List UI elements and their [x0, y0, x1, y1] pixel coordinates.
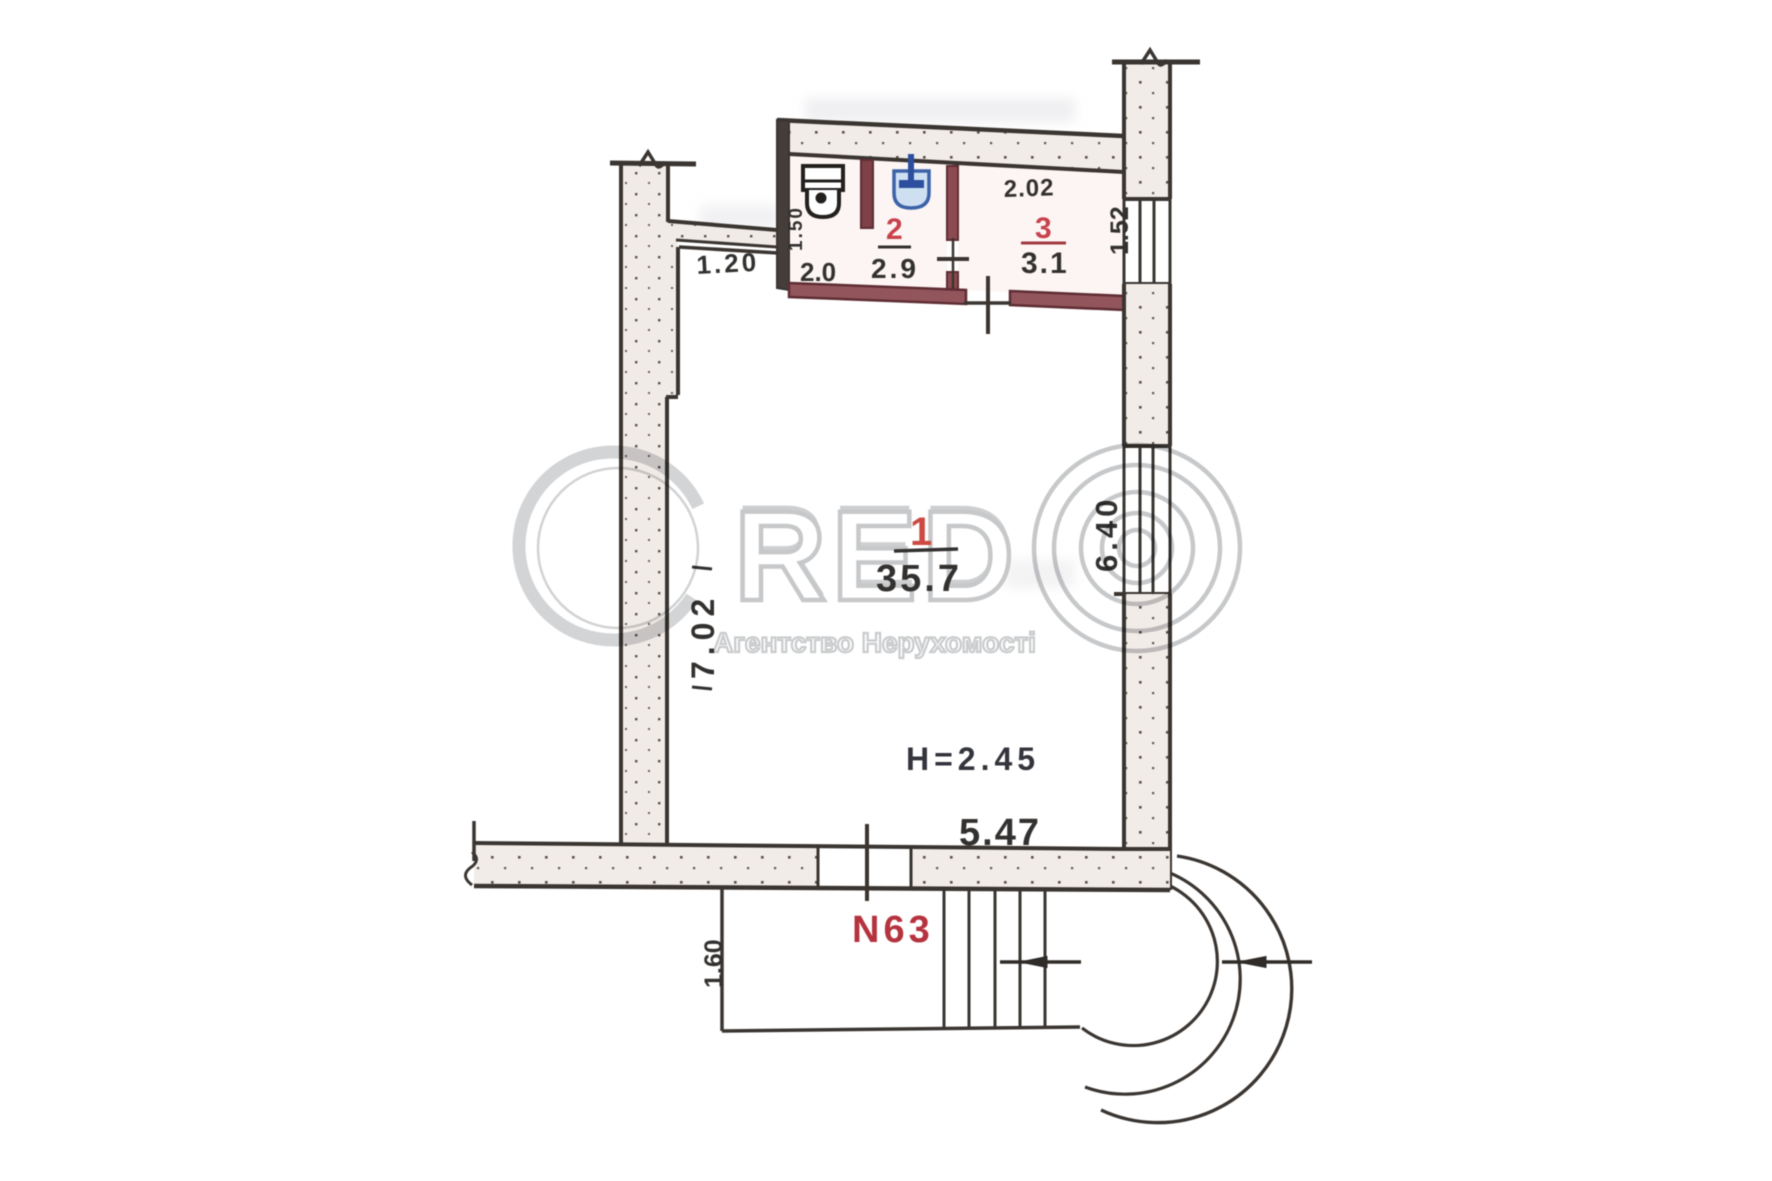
svg-text:1.52: 1.52 — [1106, 206, 1134, 255]
svg-text:3: 3 — [1035, 212, 1052, 245]
svg-text:H=2.45: H=2.45 — [906, 741, 1040, 777]
svg-text:1.20: 1.20 — [696, 247, 760, 280]
svg-text:RED: RED — [734, 485, 1019, 628]
svg-text:2.9: 2.9 — [871, 253, 919, 284]
svg-text:2.02: 2.02 — [1003, 174, 1055, 203]
svg-text:3.1: 3.1 — [1021, 247, 1069, 280]
svg-text:2.0: 2.0 — [800, 257, 836, 287]
svg-text:1.50: 1.50 — [786, 206, 807, 251]
svg-text:2: 2 — [886, 213, 903, 246]
svg-text:Агентство Нерухомості: Агентство Нерухомості — [713, 627, 1036, 658]
svg-text:1: 1 — [910, 510, 932, 554]
svg-text:1.60: 1.60 — [700, 939, 728, 988]
svg-text:35.7: 35.7 — [876, 558, 962, 600]
svg-text:N63: N63 — [852, 909, 934, 951]
svg-text:5.47: 5.47 — [959, 812, 1041, 854]
